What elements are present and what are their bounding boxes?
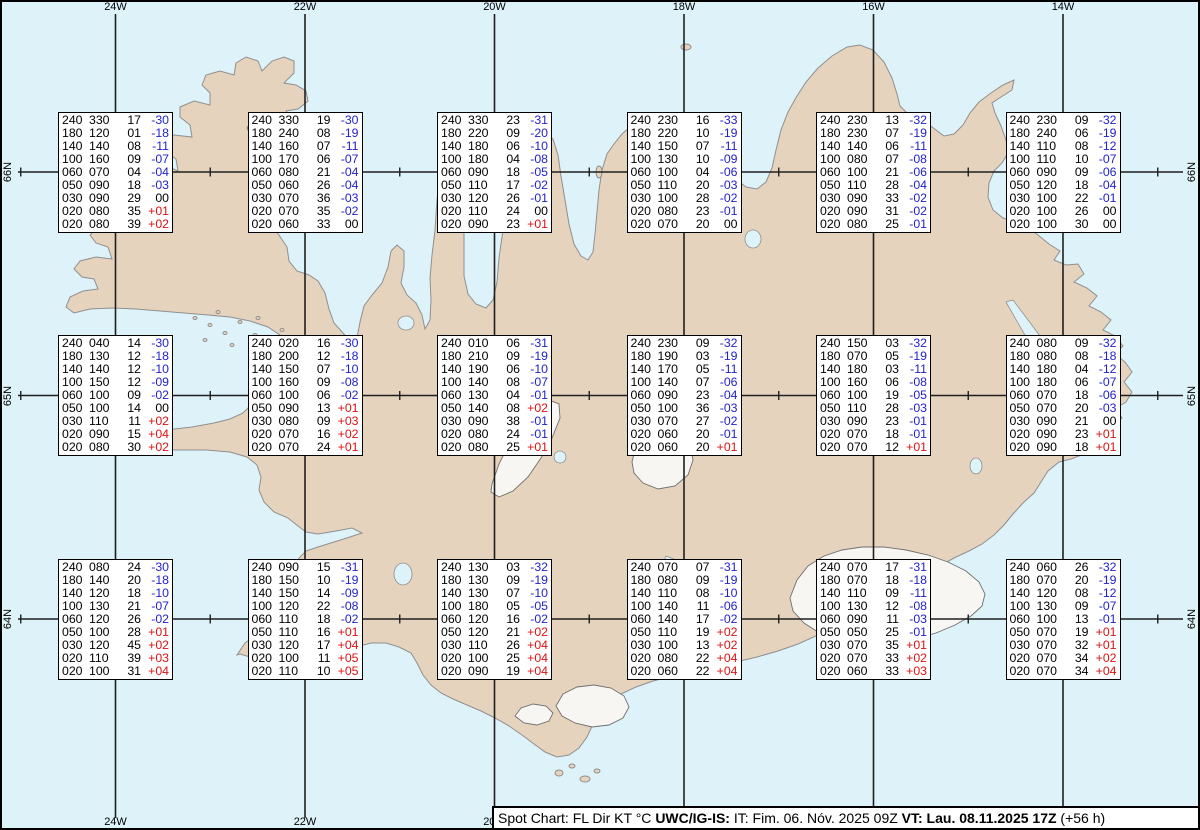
fl-value: 180: [62, 127, 89, 140]
fl-value: 020: [441, 205, 468, 218]
flight-level-row: 14012008-12: [1010, 587, 1117, 600]
flight-level-row: 02008023-01: [631, 205, 738, 218]
fl-value: 020: [631, 652, 658, 665]
fl-value: 050: [252, 179, 279, 192]
temperature-value: -01: [710, 205, 738, 218]
fl-value: 060: [252, 613, 279, 626]
wind-speed-value: 09: [498, 127, 520, 140]
fl-value: 030: [252, 639, 279, 652]
flight-level-row: 03009033-02: [820, 192, 927, 205]
temperature-value: -03: [899, 613, 927, 626]
fl-value: 060: [820, 613, 847, 626]
fl-value: 030: [631, 192, 658, 205]
wind-dir-value: 090: [1037, 166, 1067, 179]
flight-level-row: 02007035-02: [252, 205, 359, 218]
wind-dir-value: 080: [89, 441, 119, 454]
wind-speed-value: 28: [119, 626, 141, 639]
flight-level-row: 10011010-07: [1010, 153, 1117, 166]
flight-level-row: 10018004-08: [441, 153, 548, 166]
fl-value: 100: [441, 153, 468, 166]
wind-dir-value: 080: [658, 205, 688, 218]
flight-level-row: 05011016+01: [252, 626, 359, 639]
flight-level-row: 03007035+01: [820, 639, 927, 652]
temperature-value: -02: [520, 179, 548, 192]
wind-speed-value: 17: [877, 561, 899, 574]
status-text: IT: Fim. 06. Nóv. 2025 09Z: [730, 810, 902, 826]
lake-hop: [398, 316, 414, 330]
flight-level-row: 14013007-10: [441, 587, 548, 600]
temperature-value: -02: [899, 192, 927, 205]
wind-speed-value: 14: [309, 587, 331, 600]
fl-value: 060: [631, 166, 658, 179]
wind-speed-value: 03: [498, 561, 520, 574]
status-text-bold: UWC/IG-IS:: [655, 810, 730, 826]
wind-speed-value: 24: [498, 205, 520, 218]
fl-value: 030: [62, 192, 89, 205]
flight-level-row: 06011018-02: [252, 613, 359, 626]
wind-speed-value: 30: [119, 441, 141, 454]
wind-dir-value: 090: [89, 192, 119, 205]
flight-level-row: 03007032+01: [1010, 639, 1117, 652]
wind-speed-value: 13: [1067, 613, 1089, 626]
flight-level-row: 06009018-05: [441, 166, 548, 179]
wind-dir-value: 060: [279, 218, 309, 231]
wind-speed-value: 16: [309, 626, 331, 639]
flight-level-row: 06012016-02: [441, 613, 548, 626]
data-box-66N-22W: 24033019-3018024008-1914016007-111001700…: [248, 112, 363, 233]
latitude-label-right: 65N: [1186, 385, 1198, 405]
fl-value: 020: [62, 652, 89, 665]
flight-level-row: 0300902900: [62, 192, 169, 205]
wind-dir-value: 070: [847, 574, 877, 587]
temperature-value: -08: [899, 600, 927, 613]
flight-level-row: 06009009-06: [1010, 166, 1117, 179]
temperature-value: -33: [710, 114, 738, 127]
temperature-value: +04: [141, 665, 169, 678]
fl-value: 020: [252, 205, 279, 218]
wind-dir-value: 180: [468, 153, 498, 166]
wind-speed-value: 22: [688, 652, 710, 665]
flight-level-row: 02009031-02: [820, 205, 927, 218]
flight-level-row: 03010013+02: [631, 639, 738, 652]
fl-value: 050: [62, 626, 89, 639]
flight-level-row: 14014006-11: [820, 140, 927, 153]
wind-speed-value: 28: [877, 179, 899, 192]
temperature-value: +04: [1089, 665, 1117, 678]
fl-value: 020: [62, 218, 89, 231]
fl-value: 020: [1010, 665, 1037, 678]
wind-speed-value: 09: [877, 587, 899, 600]
wind-speed-value: 09: [1067, 114, 1089, 127]
wind-dir-value: 120: [279, 639, 309, 652]
flight-level-row: 18024008-19: [252, 127, 359, 140]
wind-dir-value: 100: [847, 166, 877, 179]
flight-level-row: 14014008-11: [62, 140, 169, 153]
flight-level-row: 03012026-01: [441, 192, 548, 205]
wind-dir-value: 110: [847, 587, 877, 600]
wind-dir-value: 100: [658, 192, 688, 205]
wind-dir-value: 110: [468, 179, 498, 192]
wind-dir-value: 090: [468, 166, 498, 179]
wind-dir-value: 130: [658, 153, 688, 166]
temperature-value: +01: [1089, 626, 1117, 639]
wind-speed-value: 04: [688, 166, 710, 179]
wind-dir-value: 080: [468, 441, 498, 454]
flight-level-row: 02008039+02: [62, 218, 169, 231]
fl-value: 020: [252, 441, 279, 454]
wind-dir-value: 220: [658, 127, 688, 140]
wind-speed-value: 08: [688, 587, 710, 600]
status-text-bold: VT: Lau. 08.11.2025 17Z: [902, 810, 1057, 826]
fl-value: 140: [1010, 140, 1037, 153]
flight-level-row: 06008021-04: [252, 166, 359, 179]
fl-value: 020: [252, 218, 279, 231]
temperature-value: +04: [520, 652, 548, 665]
fl-value: 020: [62, 205, 89, 218]
wind-dir-value: 240: [1037, 127, 1067, 140]
longitude-label-top: 14W: [1052, 1, 1075, 14]
wind-speed-value: 18: [877, 574, 899, 587]
flight-level-row: 02009023+01: [441, 218, 548, 231]
wind-dir-value: 100: [1037, 218, 1067, 231]
wind-speed-value: 12: [877, 441, 899, 454]
fl-value: 060: [820, 166, 847, 179]
wind-speed-value: 11: [688, 600, 710, 613]
flight-level-row: 06010004-06: [631, 166, 738, 179]
wind-speed-value: 20: [688, 441, 710, 454]
fl-value: 100: [252, 153, 279, 166]
wind-speed-value: 24: [309, 441, 331, 454]
flight-level-row: 02008022+04: [631, 652, 738, 665]
wind-speed-value: 22: [688, 665, 710, 678]
wind-dir-value: 230: [1037, 114, 1067, 127]
temperature-value: +04: [520, 639, 548, 652]
flight-level-row: 03012045+02: [62, 639, 169, 652]
wind-dir-value: 110: [468, 205, 498, 218]
fl-value: 020: [62, 665, 89, 678]
temperature-value: -07: [1089, 153, 1117, 166]
wind-speed-value: 34: [1067, 665, 1089, 678]
fl-value: 240: [820, 561, 847, 574]
wind-speed-value: 18: [309, 613, 331, 626]
fl-value: 240: [1010, 561, 1037, 574]
data-box-66N-24W: 24033017-3018012001-1814014008-111001600…: [58, 112, 173, 233]
fl-value: 100: [820, 153, 847, 166]
fl-value: 140: [631, 587, 658, 600]
temperature-value: -03: [331, 192, 359, 205]
fl-value: 030: [1010, 639, 1037, 652]
flight-level-row: 24006026-32: [1010, 561, 1117, 574]
temperature-value: -32: [1089, 561, 1117, 574]
wind-speed-value: 36: [309, 192, 331, 205]
wind-speed-value: 15: [309, 561, 331, 574]
wind-dir-value: 070: [1037, 639, 1067, 652]
wind-speed-value: 32: [1067, 639, 1089, 652]
data-box-65N-20W: 24001006-3118021009-1914019006-101001400…: [437, 335, 552, 456]
fl-value: 050: [252, 626, 279, 639]
flight-level-row: 02006020+01: [631, 441, 738, 454]
wind-speed-value: 45: [119, 639, 141, 652]
flight-level-row: 05011019+02: [631, 626, 738, 639]
fl-value: 180: [631, 127, 658, 140]
wind-speed-value: 26: [1067, 561, 1089, 574]
flight-level-row: 10013021-07: [62, 600, 169, 613]
fl-value: 050: [631, 626, 658, 639]
lake-thingvallavatn: [394, 563, 412, 585]
wind-dir-value: 080: [658, 574, 688, 587]
wind-dir-value: 090: [1037, 441, 1067, 454]
longitude-label-top: 18W: [673, 1, 696, 14]
wind-speed-value: 05: [498, 600, 520, 613]
fl-value: 050: [820, 626, 847, 639]
fl-value: 030: [1010, 192, 1037, 205]
wind-dir-value: 230: [658, 114, 688, 127]
data-box-64N-22W: 24009015-3118015010-1914015014-091001202…: [248, 559, 363, 680]
wind-speed-value: 04: [498, 153, 520, 166]
flight-level-row: 03012017+04: [252, 639, 359, 652]
temperature-value: +05: [331, 665, 359, 678]
wind-dir-value: 090: [468, 218, 498, 231]
fl-value: 100: [631, 600, 658, 613]
fl-value: 100: [1010, 153, 1037, 166]
flight-level-row: 03007036-03: [252, 192, 359, 205]
temperature-value: -31: [899, 561, 927, 574]
fl-value: 060: [441, 613, 468, 626]
wind-dir-value: 150: [658, 140, 688, 153]
temperature-value: -18: [141, 574, 169, 587]
wind-speed-value: 26: [498, 192, 520, 205]
temperature-value: -19: [710, 574, 738, 587]
wind-dir-value: 120: [279, 600, 309, 613]
fl-value: 030: [252, 192, 279, 205]
temperature-value: -31: [331, 561, 359, 574]
temperature-value: -11: [899, 140, 927, 153]
wind-dir-value: 140: [658, 600, 688, 613]
wind-speed-value: 39: [119, 652, 141, 665]
temperature-value: +01: [899, 441, 927, 454]
wind-dir-value: 080: [279, 166, 309, 179]
fl-value: 020: [441, 441, 468, 454]
flight-level-row: 02007034+04: [1010, 665, 1117, 678]
fl-value: 240: [820, 114, 847, 127]
temperature-value: -09: [331, 587, 359, 600]
lake-hvitarvatn: [554, 451, 566, 463]
wind-speed-value: 06: [498, 140, 520, 153]
temperature-value: -07: [331, 153, 359, 166]
wind-speed-value: 09: [498, 574, 520, 587]
wind-speed-value: 31: [119, 665, 141, 678]
fl-value: 180: [62, 574, 89, 587]
temperature-value: -04: [331, 179, 359, 192]
flight-level-row: 06009011-03: [820, 613, 927, 626]
fl-value: 020: [631, 665, 658, 678]
fl-value: 140: [252, 587, 279, 600]
wind-speed-value: 17: [498, 179, 520, 192]
fl-value: 060: [631, 613, 658, 626]
wind-speed-value: 06: [877, 140, 899, 153]
temperature-value: -31: [520, 114, 548, 127]
wind-dir-value: 120: [89, 613, 119, 626]
flight-level-row: 03010028-02: [631, 192, 738, 205]
flight-level-row: 24033023-31: [441, 114, 548, 127]
flight-level-row: 14011008-12: [1010, 140, 1117, 153]
fl-value: 060: [62, 613, 89, 626]
wind-dir-value: 150: [279, 574, 309, 587]
wind-dir-value: 100: [279, 652, 309, 665]
wind-speed-value: 08: [309, 127, 331, 140]
temperature-value: +01: [331, 626, 359, 639]
wind-speed-value: 08: [1067, 140, 1089, 153]
data-box-66N-18W: 24023016-3318022010-1914015007-111001301…: [627, 112, 742, 233]
wind-dir-value: 060: [658, 665, 688, 678]
fl-value: 020: [1010, 205, 1037, 218]
fl-value: 030: [820, 192, 847, 205]
flight-level-row: 18023007-19: [820, 127, 927, 140]
wind-dir-value: 090: [847, 613, 877, 626]
flight-level-row: 24033019-30: [252, 114, 359, 127]
flight-level-row: 18022009-20: [441, 127, 548, 140]
temperature-value: -19: [710, 127, 738, 140]
wind-speed-value: 22: [1067, 192, 1089, 205]
wind-dir-value: 070: [279, 441, 309, 454]
temperature-value: +02: [141, 441, 169, 454]
flight-level-row: 05007019+01: [1010, 626, 1117, 639]
temperature-value: +01: [331, 441, 359, 454]
flight-level-row: 06010021-06: [820, 166, 927, 179]
fl-value: 140: [631, 140, 658, 153]
latitude-label-left: 65N: [2, 385, 14, 405]
fl-value: 030: [820, 639, 847, 652]
fl-value: 020: [441, 218, 468, 231]
data-box-64N-16W: 24007017-3118007018-1814011009-111001301…: [816, 559, 931, 680]
wind-dir-value: 110: [89, 652, 119, 665]
temperature-value: +04: [520, 665, 548, 678]
wind-dir-value: 070: [279, 192, 309, 205]
fl-value: 020: [1010, 652, 1037, 665]
flight-level-row: 0201002600: [1010, 205, 1117, 218]
wind-speed-value: 17: [119, 114, 141, 127]
fl-value: 240: [441, 561, 468, 574]
fl-value: 020: [631, 205, 658, 218]
fl-value: 060: [1010, 166, 1037, 179]
temperature-value: +04: [710, 652, 738, 665]
fl-value: 140: [62, 587, 89, 600]
temperature-value: 00: [331, 218, 359, 231]
wind-dir-value: 110: [847, 179, 877, 192]
wind-speed-value: 25: [498, 441, 520, 454]
wind-dir-value: 230: [847, 114, 877, 127]
temperature-value: -02: [331, 613, 359, 626]
wind-speed-value: 33: [877, 665, 899, 678]
temperature-value: -19: [1089, 574, 1117, 587]
wind-dir-value: 180: [468, 600, 498, 613]
fl-value: 020: [252, 665, 279, 678]
temperature-value: +01: [1089, 639, 1117, 652]
wind-dir-value: 160: [89, 153, 119, 166]
fl-value: 030: [631, 639, 658, 652]
flight-level-row: 02006022+04: [631, 665, 738, 678]
temperature-value: -01: [1089, 192, 1117, 205]
wind-dir-value: 120: [1037, 587, 1067, 600]
temperature-value: -04: [1089, 179, 1117, 192]
temperature-value: +04: [710, 665, 738, 678]
wind-speed-value: 26: [309, 179, 331, 192]
fl-value: 030: [441, 639, 468, 652]
flight-level-row: 02007033+02: [820, 652, 927, 665]
flight-level-row: 10013012-08: [820, 600, 927, 613]
wind-speed-value: 10: [688, 153, 710, 166]
flight-level-row: 02007024+01: [252, 441, 359, 454]
fl-value: 100: [820, 600, 847, 613]
temperature-value: -19: [1089, 127, 1117, 140]
wind-dir-value: 060: [279, 179, 309, 192]
fl-value: 050: [441, 626, 468, 639]
lake-myvatn: [745, 230, 761, 248]
wind-dir-value: 060: [1037, 561, 1067, 574]
fl-value: 180: [631, 574, 658, 587]
wind-dir-value: 070: [847, 639, 877, 652]
longitude-label-top: 22W: [294, 1, 317, 14]
wind-speed-value: 13: [688, 639, 710, 652]
fl-value: 180: [820, 574, 847, 587]
data-box-64N-14W: 24006026-3218007020-1914012008-121001300…: [1006, 559, 1121, 680]
wind-dir-value: 120: [468, 613, 498, 626]
wind-dir-value: 120: [468, 626, 498, 639]
wind-speed-value: 07: [498, 587, 520, 600]
data-box-65N-16W: 24015003-3218007005-1914018003-111001600…: [816, 335, 931, 456]
temperature-value: -06: [710, 166, 738, 179]
temperature-value: -18: [899, 574, 927, 587]
fl-value: 020: [820, 652, 847, 665]
data-box-66N-14W: 24023009-3218024006-1914011008-121001101…: [1006, 112, 1121, 233]
flight-level-row: 18022010-19: [631, 127, 738, 140]
wind-dir-value: 130: [468, 574, 498, 587]
latitude-label-right: 64N: [1186, 609, 1198, 629]
wind-speed-value: 35: [309, 205, 331, 218]
temperature-value: +02: [520, 626, 548, 639]
fl-value: 180: [1010, 574, 1037, 587]
status-text: Spot Chart: FL Dir KT °C: [498, 810, 655, 826]
data-box-64N-18W: 24007007-3118008009-1914011008-101001401…: [627, 559, 742, 680]
flight-level-row: 05005025-01: [820, 626, 927, 639]
wind-speed-value: 33: [877, 192, 899, 205]
temperature-value: +02: [1089, 652, 1117, 665]
longitude-label-bottom: 24W: [104, 816, 127, 829]
wind-speed-value: 21: [309, 166, 331, 179]
latitude-label-left: 64N: [2, 609, 14, 629]
wind-dir-value: 120: [89, 587, 119, 600]
wind-dir-value: 110: [279, 626, 309, 639]
wind-speed-value: 13: [877, 114, 899, 127]
flight-level-row: 18008009-19: [631, 574, 738, 587]
flight-level-row: 0201003000: [1010, 218, 1117, 231]
wind-speed-value: 20: [688, 179, 710, 192]
wind-speed-value: 25: [498, 652, 520, 665]
temperature-value: +01: [1089, 441, 1117, 454]
temperature-value: +01: [141, 205, 169, 218]
wind-dir-value: 130: [847, 600, 877, 613]
temperature-value: -05: [520, 600, 548, 613]
flight-level-row: 02006033+03: [820, 665, 927, 678]
fl-value: 020: [441, 652, 468, 665]
wind-dir-value: 080: [89, 218, 119, 231]
data-box-65N-14W: 24008009-3218008008-1814018004-121001800…: [1006, 335, 1121, 456]
wind-dir-value: 070: [1037, 652, 1067, 665]
wind-dir-value: 110: [658, 179, 688, 192]
data-box-65N-18W: 24023009-3218019003-1914017005-111001400…: [627, 335, 742, 456]
temperature-value: -02: [331, 205, 359, 218]
wind-dir-value: 070: [1037, 574, 1067, 587]
